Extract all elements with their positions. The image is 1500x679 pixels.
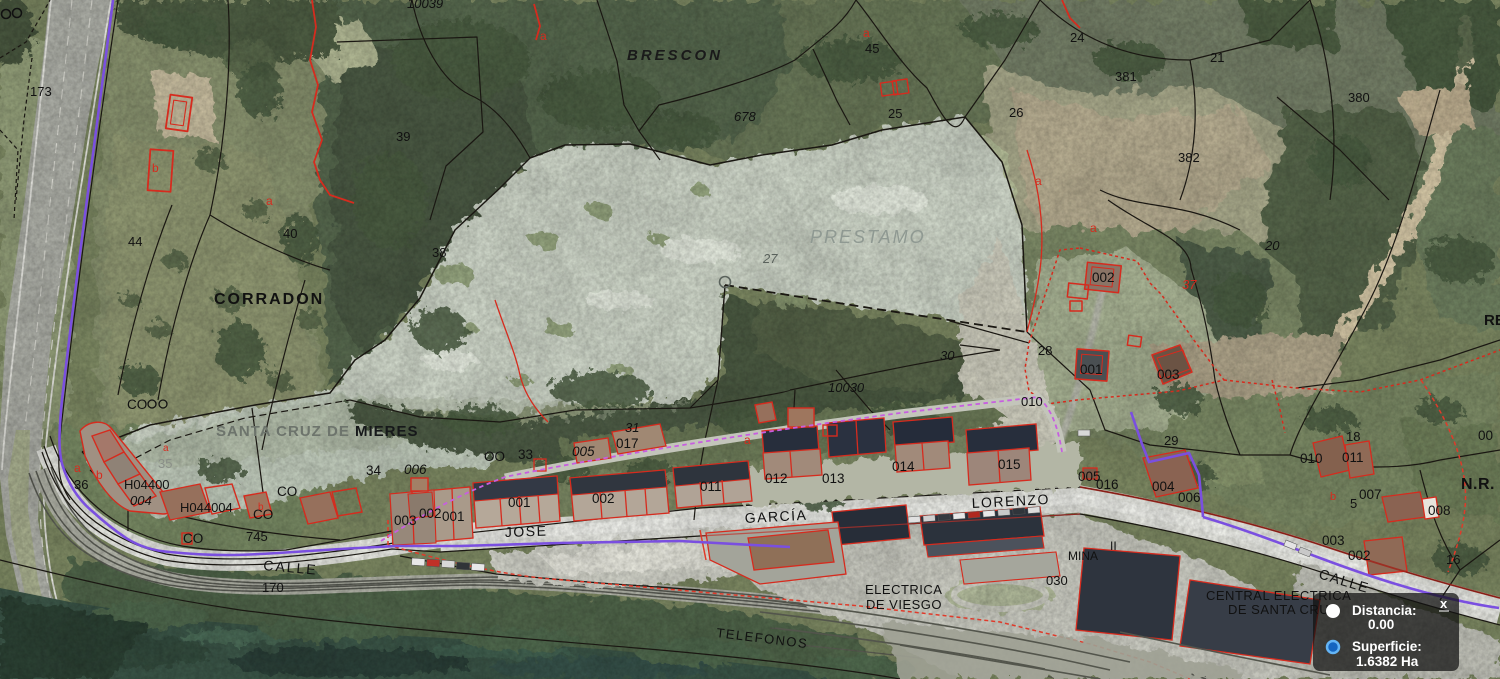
svg-text:CO: CO — [183, 531, 203, 546]
svg-text:GARCÍA: GARCÍA — [744, 507, 807, 526]
svg-text:b: b — [258, 502, 264, 513]
svg-text:II: II — [1110, 539, 1117, 553]
svg-text:001: 001 — [1080, 362, 1103, 377]
svg-text:18: 18 — [1346, 429, 1360, 444]
svg-text:35: 35 — [158, 456, 172, 471]
svg-text:003: 003 — [1322, 533, 1345, 548]
svg-text:b: b — [1330, 491, 1336, 503]
svg-text:x: x — [1440, 596, 1448, 611]
svg-text:44: 44 — [128, 234, 142, 249]
svg-text:015: 015 — [998, 457, 1021, 472]
svg-text:SANTA CRUZ DE MIERES: SANTA CRUZ DE MIERES — [216, 423, 419, 440]
svg-text:Distancia:: Distancia: — [1352, 603, 1417, 618]
svg-text:DE VIESGO: DE VIESGO — [866, 597, 942, 612]
svg-text:002: 002 — [592, 491, 615, 506]
svg-text:170: 170 — [262, 580, 284, 595]
svg-text:b: b — [152, 161, 159, 175]
svg-text:003: 003 — [394, 513, 417, 528]
svg-text:31: 31 — [625, 420, 639, 435]
svg-text:30: 30 — [940, 348, 955, 363]
svg-text:40: 40 — [283, 226, 297, 241]
svg-text:H044004: H044004 — [180, 500, 233, 515]
svg-text:CORRADON: CORRADON — [214, 291, 324, 308]
svg-text:BRESCON: BRESCON — [627, 47, 723, 64]
svg-text:173: 173 — [30, 84, 52, 99]
svg-text:a: a — [540, 29, 547, 43]
svg-text:1.6382 Ha: 1.6382 Ha — [1356, 654, 1419, 669]
svg-text:014: 014 — [892, 459, 915, 474]
svg-text:012: 012 — [765, 471, 788, 486]
svg-text:745: 745 — [246, 529, 268, 544]
svg-text:a: a — [1090, 221, 1097, 235]
svg-text:002: 002 — [1092, 270, 1115, 285]
svg-text:27: 27 — [762, 251, 778, 266]
svg-text:24: 24 — [1070, 30, 1084, 45]
svg-text:017: 017 — [616, 436, 639, 451]
svg-text:20: 20 — [1264, 238, 1280, 253]
svg-text:001: 001 — [508, 495, 531, 510]
svg-text:10039: 10039 — [407, 0, 443, 11]
svg-text:36: 36 — [74, 477, 88, 492]
svg-text:005: 005 — [572, 444, 595, 459]
svg-text:N.R.: N.R. — [1461, 476, 1495, 493]
svg-text:004: 004 — [1152, 479, 1175, 494]
svg-text:10030: 10030 — [828, 380, 865, 395]
svg-text:37: 37 — [1182, 277, 1197, 292]
svg-text:MINA: MINA — [1068, 549, 1098, 563]
svg-text:011: 011 — [1342, 450, 1364, 465]
svg-text:678: 678 — [734, 109, 756, 124]
svg-text:25: 25 — [888, 106, 902, 121]
svg-text:CO: CO — [277, 484, 297, 499]
svg-text:013: 013 — [822, 471, 845, 486]
svg-text:a: a — [1035, 174, 1042, 188]
svg-text:382: 382 — [1178, 150, 1200, 165]
svg-text:38: 38 — [432, 245, 446, 260]
svg-text:008: 008 — [1428, 503, 1451, 518]
svg-text:45: 45 — [865, 41, 879, 56]
svg-text:28: 28 — [1038, 343, 1052, 358]
svg-text:OO: OO — [484, 449, 505, 464]
svg-text:007: 007 — [1359, 487, 1382, 502]
svg-text:380: 380 — [1348, 90, 1370, 105]
svg-text:a: a — [163, 443, 169, 454]
svg-text:030: 030 — [1046, 573, 1068, 588]
svg-text:010: 010 — [1300, 451, 1323, 466]
svg-text:002: 002 — [1348, 548, 1371, 563]
svg-text:003: 003 — [1157, 367, 1180, 382]
svg-text:Superficie:: Superficie: — [1352, 639, 1422, 654]
svg-text:CO: CO — [127, 397, 147, 412]
svg-text:33: 33 — [518, 447, 533, 462]
svg-text:H04400: H04400 — [124, 477, 170, 492]
svg-text:21: 21 — [1210, 50, 1224, 65]
svg-text:a: a — [74, 461, 81, 475]
svg-text:0.00: 0.00 — [1368, 617, 1394, 632]
svg-text:PRESTAMO: PRESTAMO — [810, 227, 926, 247]
svg-text:00: 00 — [1478, 428, 1493, 443]
svg-text:011: 011 — [700, 479, 722, 494]
svg-text:002: 002 — [419, 506, 442, 521]
svg-text:5: 5 — [1350, 496, 1357, 511]
svg-text:a: a — [863, 26, 870, 40]
svg-text:001: 001 — [442, 509, 465, 524]
svg-text:b: b — [96, 468, 103, 482]
svg-text:006: 006 — [404, 462, 427, 477]
svg-text:39: 39 — [396, 129, 410, 144]
svg-text:016: 016 — [1096, 477, 1119, 492]
svg-text:004: 004 — [130, 493, 152, 508]
svg-text:381: 381 — [1115, 69, 1137, 84]
svg-text:RE: RE — [1484, 312, 1500, 329]
svg-text:006: 006 — [1178, 490, 1201, 505]
svg-text:a: a — [744, 433, 751, 447]
svg-text:ELECTRICA: ELECTRICA — [865, 582, 942, 597]
svg-text:34: 34 — [366, 463, 382, 478]
svg-text:29: 29 — [1164, 433, 1178, 448]
svg-text:010: 010 — [1021, 394, 1043, 409]
svg-text:16: 16 — [1446, 552, 1460, 567]
svg-text:26: 26 — [1009, 105, 1023, 120]
svg-text:a: a — [266, 194, 273, 208]
svg-text:JOSE: JOSE — [505, 523, 548, 540]
